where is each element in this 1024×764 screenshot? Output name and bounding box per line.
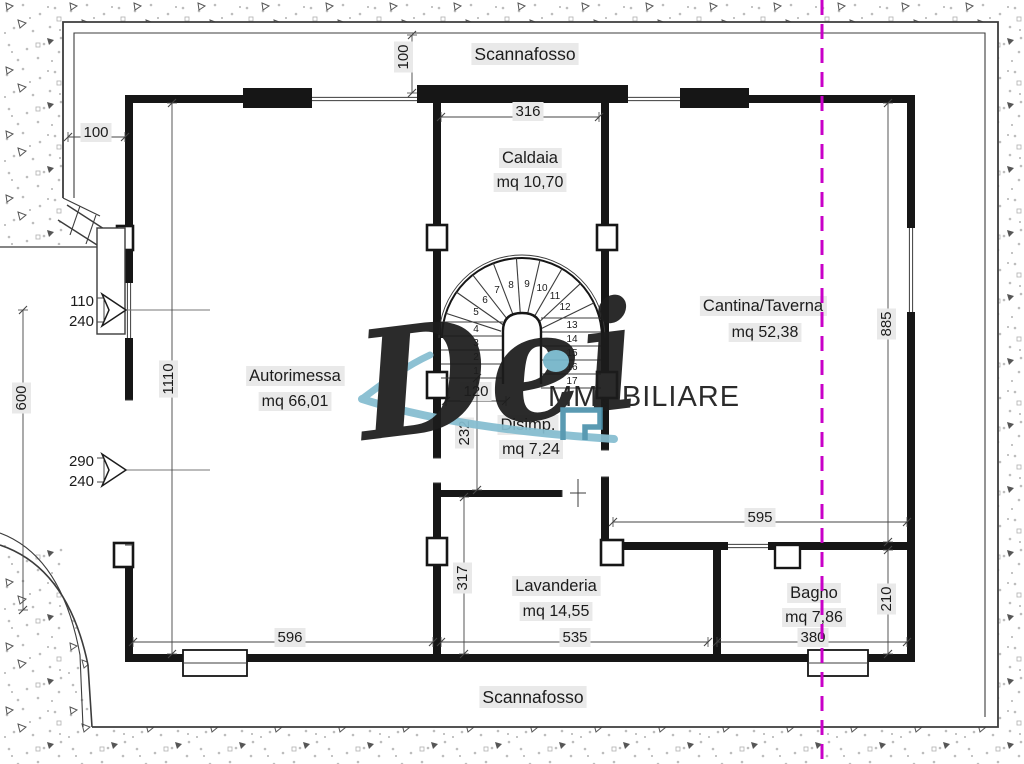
pilaster bbox=[601, 540, 623, 565]
floor-plan-drawing: 1234567891011121314151617 10031610060011… bbox=[0, 0, 1024, 764]
dim-text: 210 bbox=[878, 586, 895, 611]
opening-width: 290 bbox=[69, 453, 94, 470]
dim-label: 100 bbox=[394, 41, 413, 72]
wall bbox=[243, 88, 312, 108]
left-dimension-area bbox=[0, 245, 63, 545]
wall bbox=[868, 654, 915, 662]
window-gap bbox=[728, 542, 768, 550]
room-area-caldaia: mq 10,70 bbox=[494, 173, 567, 192]
room-name-bagno: Bagno bbox=[787, 583, 841, 603]
pilaster bbox=[427, 538, 447, 565]
window-gap bbox=[628, 95, 680, 103]
pilaster bbox=[114, 543, 133, 567]
room-name-autorimessa: Autorimessa bbox=[246, 366, 345, 386]
room-area-lavanderia: mq 14,55 bbox=[520, 602, 593, 621]
room-name-cantina: Cantina/Taverna bbox=[700, 296, 827, 316]
dim-text: 595 bbox=[747, 509, 772, 526]
room-name-lavanderia: Lavanderia bbox=[512, 576, 600, 596]
dim-text: 535 bbox=[562, 629, 587, 646]
dim-text: 596 bbox=[277, 629, 302, 646]
dim-label: 317 bbox=[453, 562, 472, 593]
dim-text: 885 bbox=[878, 311, 895, 336]
opening-height: 240 bbox=[69, 313, 94, 330]
flue-niche bbox=[775, 545, 800, 568]
dim-label: 380 bbox=[797, 628, 828, 647]
dim-label: 316 bbox=[512, 102, 543, 121]
room-name-bagno: Bagno bbox=[790, 584, 838, 602]
room-name-cantina: Cantina/Taverna bbox=[703, 297, 824, 315]
pilaster bbox=[597, 225, 617, 250]
room-area-caldaia: mq 10,70 bbox=[497, 174, 564, 191]
room-area-bagno: mq 7,86 bbox=[782, 608, 846, 627]
room-name-lavanderia: Lavanderia bbox=[515, 577, 597, 595]
wall bbox=[433, 483, 441, 662]
corridor-label-bottom: Scannafosso bbox=[479, 686, 586, 708]
window-gap bbox=[907, 228, 915, 312]
dim-text: 317 bbox=[454, 565, 471, 590]
dim-label: 595 bbox=[744, 508, 775, 527]
room-area-bagno: mq 7,86 bbox=[785, 609, 843, 626]
dim-text: 316 bbox=[515, 103, 540, 120]
dim-label: 596 bbox=[274, 628, 305, 647]
wall bbox=[907, 95, 915, 228]
dim-label: 535 bbox=[559, 628, 590, 647]
room-area-autorimessa: mq 66,01 bbox=[259, 392, 332, 411]
wall bbox=[125, 338, 133, 400]
opening-height: 240 bbox=[69, 473, 94, 490]
wall bbox=[680, 88, 749, 108]
dim-label: 1110 bbox=[159, 360, 178, 397]
wall bbox=[125, 654, 183, 662]
corridor-label-bottom: Scannafosso bbox=[482, 687, 583, 707]
corridor-label-top: Scannafosso bbox=[471, 43, 578, 65]
wall bbox=[125, 95, 133, 283]
room-area-autorimessa: mq 66,01 bbox=[262, 393, 329, 410]
room-area-lavanderia: mq 14,55 bbox=[523, 603, 590, 620]
room-area-cantina: mq 52,38 bbox=[732, 324, 799, 341]
corridor-label-top: Scannafosso bbox=[474, 44, 575, 64]
dim-text: 100 bbox=[83, 124, 108, 141]
dim-text: 1110 bbox=[160, 363, 177, 394]
wall bbox=[907, 312, 915, 662]
dim-text: 600 bbox=[13, 385, 30, 410]
watermark-script-text: Dei bbox=[344, 267, 650, 477]
window-gap bbox=[312, 95, 417, 103]
dim-label: 600 bbox=[12, 382, 31, 413]
dim-text: 100 bbox=[395, 44, 412, 69]
floor-plan-page: 1234567891011121314151617 10031610060011… bbox=[0, 0, 1024, 764]
watermark-i-dot bbox=[543, 350, 569, 372]
wall bbox=[433, 490, 562, 497]
room-name-caldaia: Caldaia bbox=[499, 148, 562, 168]
dim-label: 100 bbox=[80, 123, 111, 142]
wall bbox=[247, 654, 808, 662]
pilaster bbox=[427, 225, 447, 250]
room-area-cantina: mq 52,38 bbox=[729, 323, 802, 342]
opening-width: 110 bbox=[70, 293, 94, 310]
room-name-caldaia: Caldaia bbox=[502, 149, 559, 167]
wall bbox=[417, 85, 628, 103]
room-name-autorimessa: Autorimessa bbox=[249, 367, 342, 385]
dim-label: 885 bbox=[877, 308, 896, 339]
dim-label: 210 bbox=[877, 583, 896, 614]
